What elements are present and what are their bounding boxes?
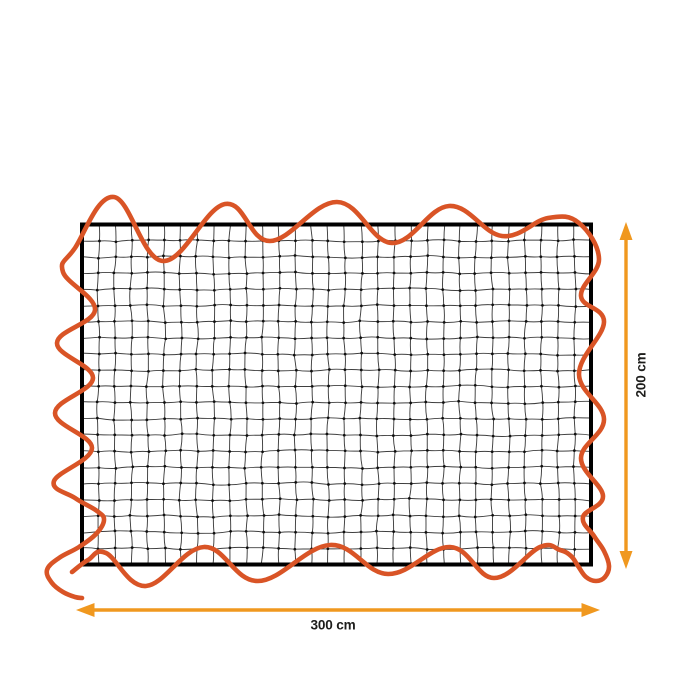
svg-text:300 cm: 300 cm bbox=[311, 618, 356, 633]
svg-text:200 cm: 200 cm bbox=[634, 352, 649, 397]
